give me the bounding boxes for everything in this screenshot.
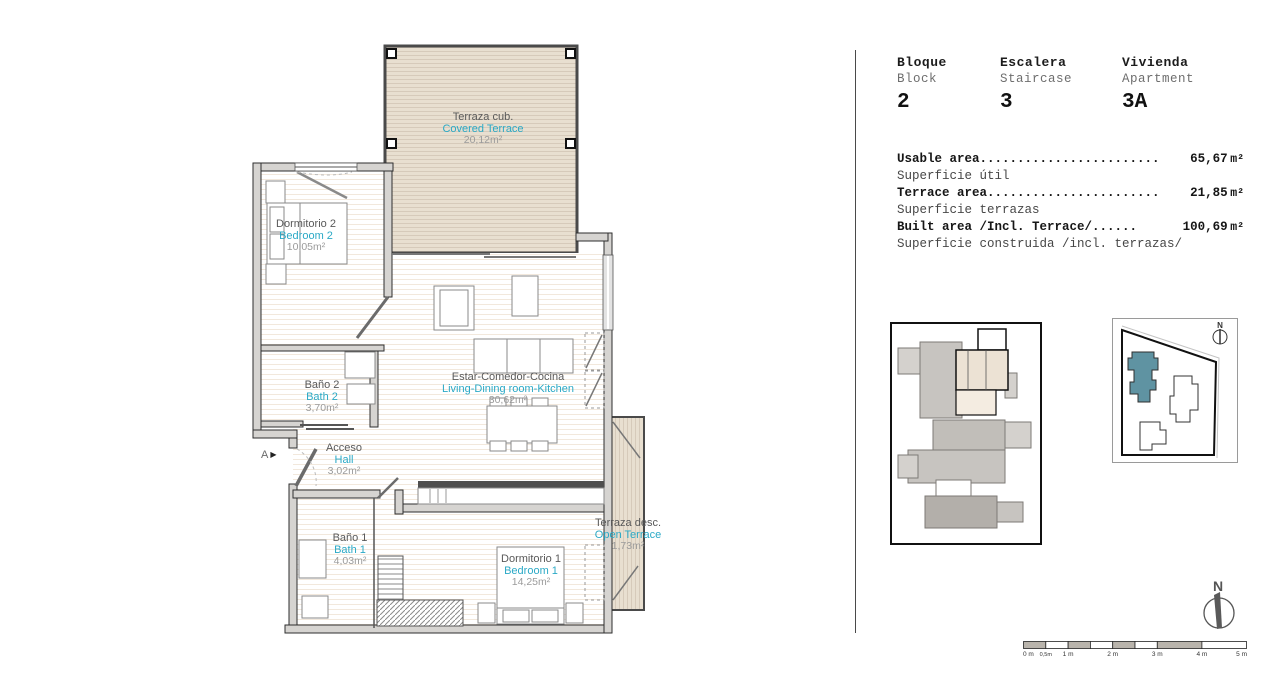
- header-staircase: Escalera Staircase 3: [1000, 55, 1072, 114]
- room-area: 1,73m²: [612, 541, 645, 553]
- room-label-bedroom-1: Dormitorio 1 Bedroom 1 14,25m²: [501, 554, 561, 589]
- staircase-label-es: Escalera: [1000, 55, 1072, 70]
- apartment-label-es: Vivienda: [1122, 55, 1194, 70]
- area-label-en: Usable area: [897, 151, 980, 168]
- apartment-label-en: Apartment: [1122, 72, 1194, 86]
- room-name-es: Baño 2: [305, 380, 340, 392]
- room-label-bedroom-2: Dormitorio 2 Bedroom 2 10,05m²: [276, 219, 336, 254]
- svg-text:N: N: [1213, 578, 1223, 594]
- svg-text:0,5m: 0,5m: [1040, 652, 1053, 658]
- room-area: 20,12m²: [464, 135, 503, 147]
- built-area-row: Built area /Incl. Terrace/ ...... 100,69…: [897, 219, 1244, 236]
- dot-leader: ........................: [980, 151, 1160, 168]
- kitchen-counter: [418, 481, 604, 504]
- area-label-es: Superficie útil: [897, 168, 1244, 185]
- room-name-es: Dormitorio 2: [276, 219, 336, 231]
- block-label-en: Block: [897, 72, 947, 86]
- room-name-es: Terraza cub.: [453, 112, 514, 124]
- floorplan-sheet: Terraza cub. Covered Terrace 20,12m² Dor…: [0, 0, 1264, 673]
- dot-leader: .......................: [987, 185, 1160, 202]
- room-label-hall: Acceso Hall 3,02m²: [326, 443, 362, 478]
- area-value: 65,67 m²: [1184, 151, 1244, 168]
- room-area: 3,02m²: [328, 466, 361, 478]
- svg-text:0 m: 0 m: [1023, 651, 1034, 658]
- area-label-es: Superficie construida /incl. terrazas/: [897, 236, 1244, 253]
- covered-terrace: [385, 46, 577, 253]
- terrace-post: [566, 49, 575, 58]
- room-label-open-terrace: Terraza desc. Open Terrace 1,73m²: [595, 518, 661, 553]
- room-label-bath-1: Baño 1 Bath 1 4,03m²: [333, 533, 368, 568]
- area-label-en: Terrace area: [897, 185, 987, 202]
- terrace-area-row: Terrace area....................... 21,8…: [897, 185, 1244, 202]
- room-area: 4,03m²: [334, 556, 367, 568]
- bath2-fixtures: [345, 352, 375, 404]
- area-value: 21,85 m²: [1184, 185, 1244, 202]
- terrace-post: [387, 49, 396, 58]
- room-name-es: Acceso: [326, 443, 362, 455]
- room-name-es: Estar-Comedor-Cocina: [452, 372, 564, 384]
- section-marker: A ▶: [261, 449, 277, 461]
- staircase-value: 3: [1000, 91, 1072, 114]
- dot-leader: ......: [1092, 219, 1137, 236]
- room-area: 3,70m²: [306, 403, 339, 415]
- block-value: 2: [897, 91, 947, 114]
- room-name-es: Baño 1: [333, 533, 368, 545]
- scale-bar: 0 m 0,5m 1 m 2 m 3 m 4 m 5 m: [1023, 641, 1249, 658]
- header-block: Bloque Block 2: [897, 55, 947, 114]
- key-plan-thumbnail: [890, 322, 1042, 545]
- svg-text:1 m: 1 m: [1063, 651, 1074, 658]
- svg-text:2 m: 2 m: [1107, 651, 1118, 658]
- usable-area-row: Usable area........................ 65,6…: [897, 151, 1244, 168]
- north-compass-icon: N: [1196, 576, 1242, 636]
- room-area: 10,05m²: [287, 242, 326, 254]
- staircase-label-en: Staircase: [1000, 72, 1072, 86]
- room-area: 14,25m²: [512, 577, 551, 589]
- svg-text:3 m: 3 m: [1152, 651, 1163, 658]
- svg-text:4 m: 4 m: [1196, 651, 1207, 658]
- area-value: 100,69 m²: [1177, 219, 1244, 236]
- room-label-covered-terrace: Terraza cub. Covered Terrace 20,12m²: [442, 112, 523, 147]
- header-apartment: Vivienda Apartment 3A: [1122, 55, 1194, 114]
- block-label-es: Bloque: [897, 55, 947, 70]
- room-area: 30,62m²: [489, 395, 528, 407]
- section-marker-arrow-icon: ▶: [270, 451, 276, 459]
- room-name-es: Terraza desc.: [595, 518, 661, 530]
- section-marker-label: A: [261, 449, 268, 461]
- terrace-post: [387, 139, 396, 148]
- svg-text:N: N: [1217, 321, 1223, 330]
- terrace-post: [566, 139, 575, 148]
- svg-text:5 m: 5 m: [1236, 651, 1247, 658]
- room-label-bath-2: Baño 2 Bath 2 3,70m²: [305, 380, 340, 415]
- area-label-es: Superficie terrazas: [897, 202, 1244, 219]
- apartment-value: 3A: [1122, 91, 1194, 114]
- room-label-living: Estar-Comedor-Cocina Living-Dining room-…: [442, 372, 574, 407]
- panel-divider: [855, 50, 856, 633]
- area-label-en: Built area /Incl. Terrace/: [897, 219, 1092, 236]
- room-name-es: Dormitorio 1: [501, 554, 561, 566]
- site-plan-thumbnail: N: [1112, 318, 1238, 463]
- areas-table: Usable area........................ 65,6…: [897, 151, 1244, 253]
